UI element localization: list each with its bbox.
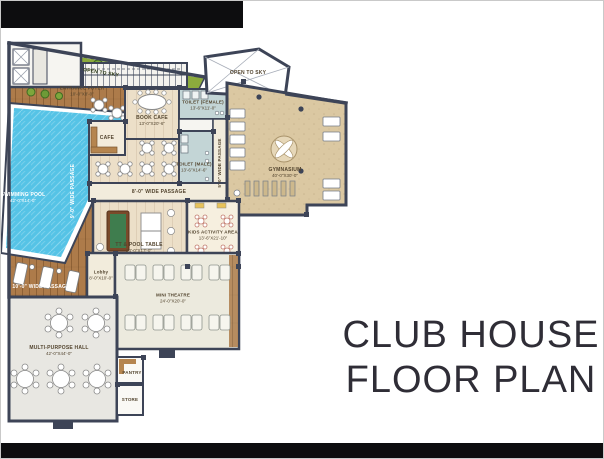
multi-purpose-hall-label: MULTI-PURPOSE HALL 42'-0"X44'-0" — [29, 345, 88, 357]
mini-theatre-room — [115, 253, 239, 358]
floor-plan-image: OPEN TO SKY ENTRANCE FOYER 10'-0"X8'-0" … — [0, 0, 604, 459]
cafe-label: CAFE — [100, 135, 114, 141]
book-cafe-room — [125, 89, 179, 139]
tt-pool-table-label: TT & POOL TABLE 24'-0"X17'-0" — [115, 242, 162, 254]
passage-8ft-label: 8'-0" WIDE PASSAGE — [132, 189, 186, 195]
kids-activity-label: KIDS ACTIVITY AREA 13'-6"X21'-10" — [188, 229, 238, 240]
entrance-foyer-label: ENTRANCE FOYER 10'-0"X8'-0" — [60, 85, 105, 96]
book-cafe-label: BOOK CAFE 13'-0"X20'-6" — [136, 115, 168, 127]
passage-5ft-label: 5'-0" WIDE PASSAGE — [217, 138, 223, 187]
gymnasium-label: GYMNASIUM 40'-0"X30'-0" — [269, 167, 302, 179]
bottom-banner — [1, 443, 604, 459]
gymnasium-room — [227, 83, 346, 215]
open-to-sky-court-label: OPEN TO SKY — [230, 70, 266, 76]
lobby-label: Lobby 8'-0"X10'-0" — [89, 269, 112, 280]
store-label: STORE — [122, 397, 138, 403]
swimming-pool-label: SWIMMING POOL 42'-0"X14'-0" — [1, 192, 46, 204]
title-line-2: FLOOR PLAN — [341, 358, 601, 403]
passage-10ft-label: 10'-0" WIDE PASSAGE — [12, 284, 69, 290]
title-line-1: CLUB HOUSE — [341, 313, 601, 358]
pantry-label: PANTRY — [122, 370, 141, 376]
passage-9ft-label: 9'-0" WIDE PASSAGE — [70, 164, 76, 218]
top-banner — [1, 1, 243, 28]
mini-theatre-label: MINI THEATRE 24'-0"X20'-0" — [156, 292, 190, 303]
page-title: CLUB HOUSE FLOOR PLAN — [341, 313, 601, 403]
toilet-male-label: TOILET (MALE) 13'-6"X14'-6" — [176, 161, 212, 172]
multi-purpose-hall-room — [9, 297, 117, 429]
toilet-female-label: TOILET (FEMALE) 13'-6"X11'-0" — [182, 99, 224, 110]
toilet-connector — [179, 119, 213, 131]
